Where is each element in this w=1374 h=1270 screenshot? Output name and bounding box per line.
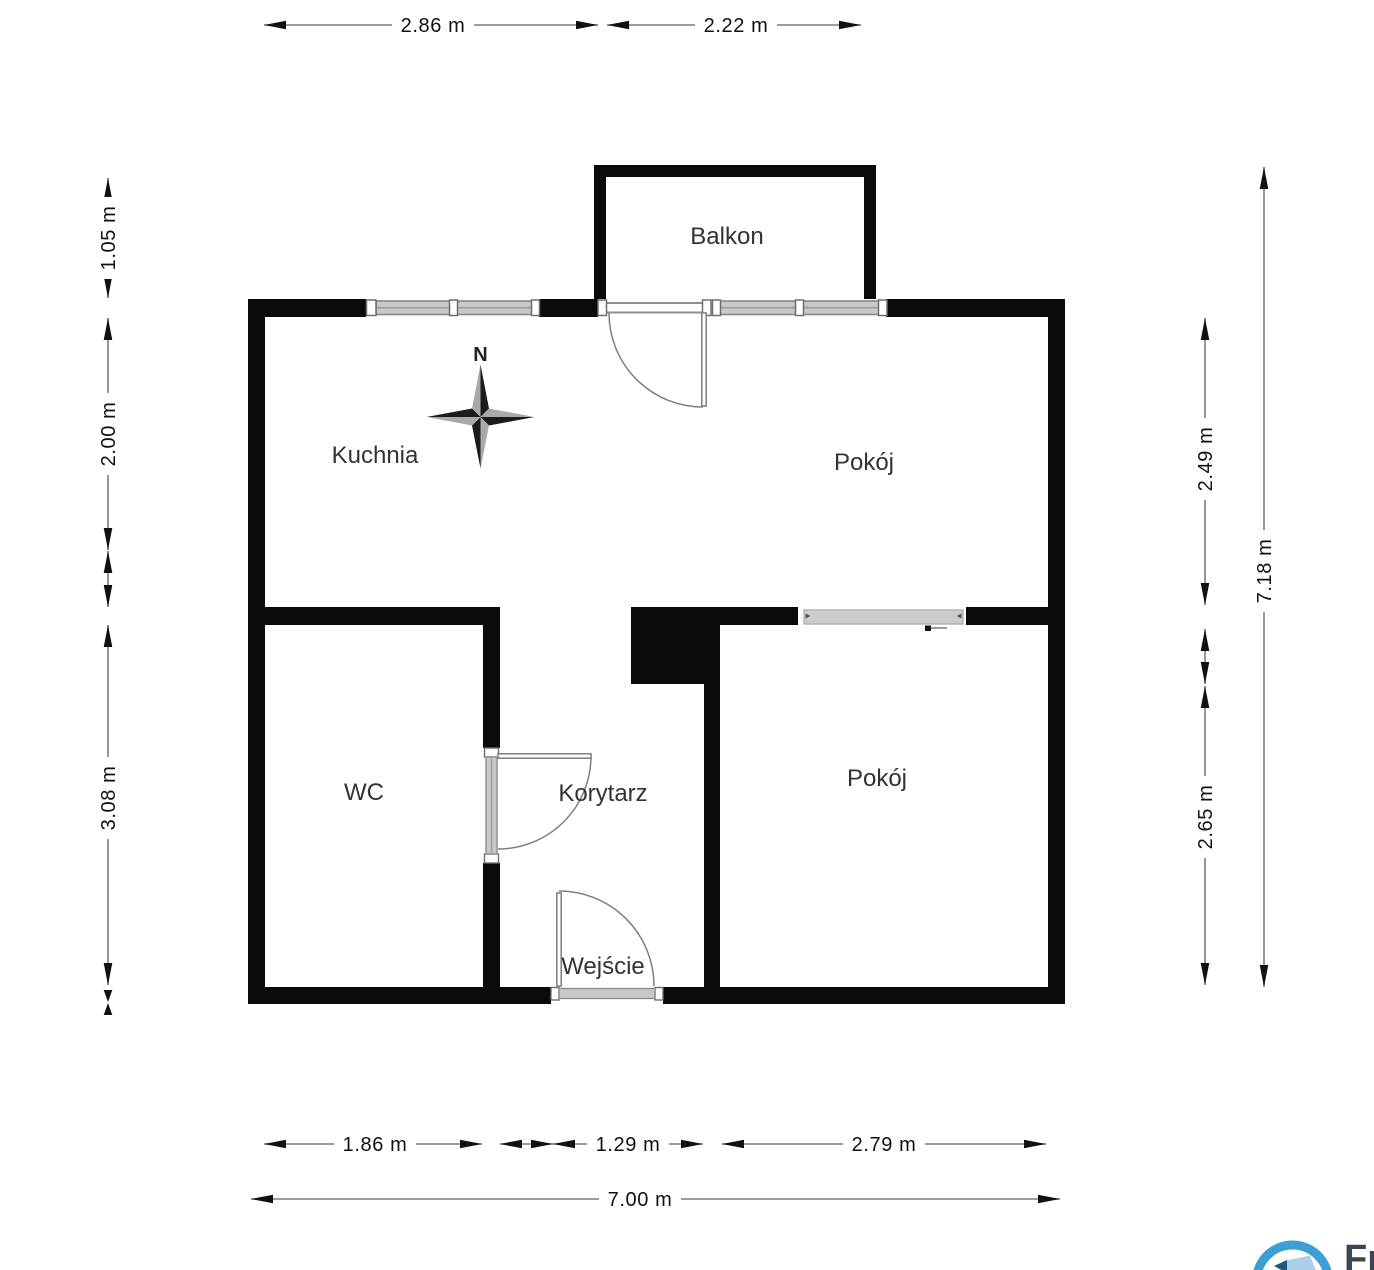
svg-text:N: N bbox=[473, 344, 487, 366]
svg-text:Kuchnia: Kuchnia bbox=[332, 442, 419, 469]
svg-text:2.22 m: 2.22 m bbox=[704, 15, 769, 37]
svg-text:2.65 m: 2.65 m bbox=[1195, 785, 1217, 850]
svg-text:Wejście: Wejście bbox=[561, 953, 645, 980]
svg-text:Pokój: Pokój bbox=[834, 449, 894, 476]
svg-text:1.29 m: 1.29 m bbox=[596, 1134, 661, 1156]
svg-text:7.00 m: 7.00 m bbox=[608, 1189, 673, 1211]
svg-text:2.49 m: 2.49 m bbox=[1195, 427, 1217, 492]
svg-text:3.08 m: 3.08 m bbox=[98, 766, 120, 831]
svg-text:2.86 m: 2.86 m bbox=[401, 15, 466, 37]
svg-text:7.18 m: 7.18 m bbox=[1254, 539, 1276, 604]
svg-text:Korytarz: Korytarz bbox=[558, 780, 647, 807]
svg-text:1.86 m: 1.86 m bbox=[343, 1134, 408, 1156]
svg-text:2.79 m: 2.79 m bbox=[852, 1134, 917, 1156]
svg-text:Balkon: Balkon bbox=[690, 223, 763, 250]
svg-text:Pokój: Pokój bbox=[847, 765, 907, 792]
svg-text:Fro: Fro bbox=[1344, 1238, 1374, 1270]
svg-text:2.00 m: 2.00 m bbox=[98, 402, 120, 467]
svg-text:1.05 m: 1.05 m bbox=[98, 206, 120, 271]
svg-text:WC: WC bbox=[344, 779, 384, 806]
